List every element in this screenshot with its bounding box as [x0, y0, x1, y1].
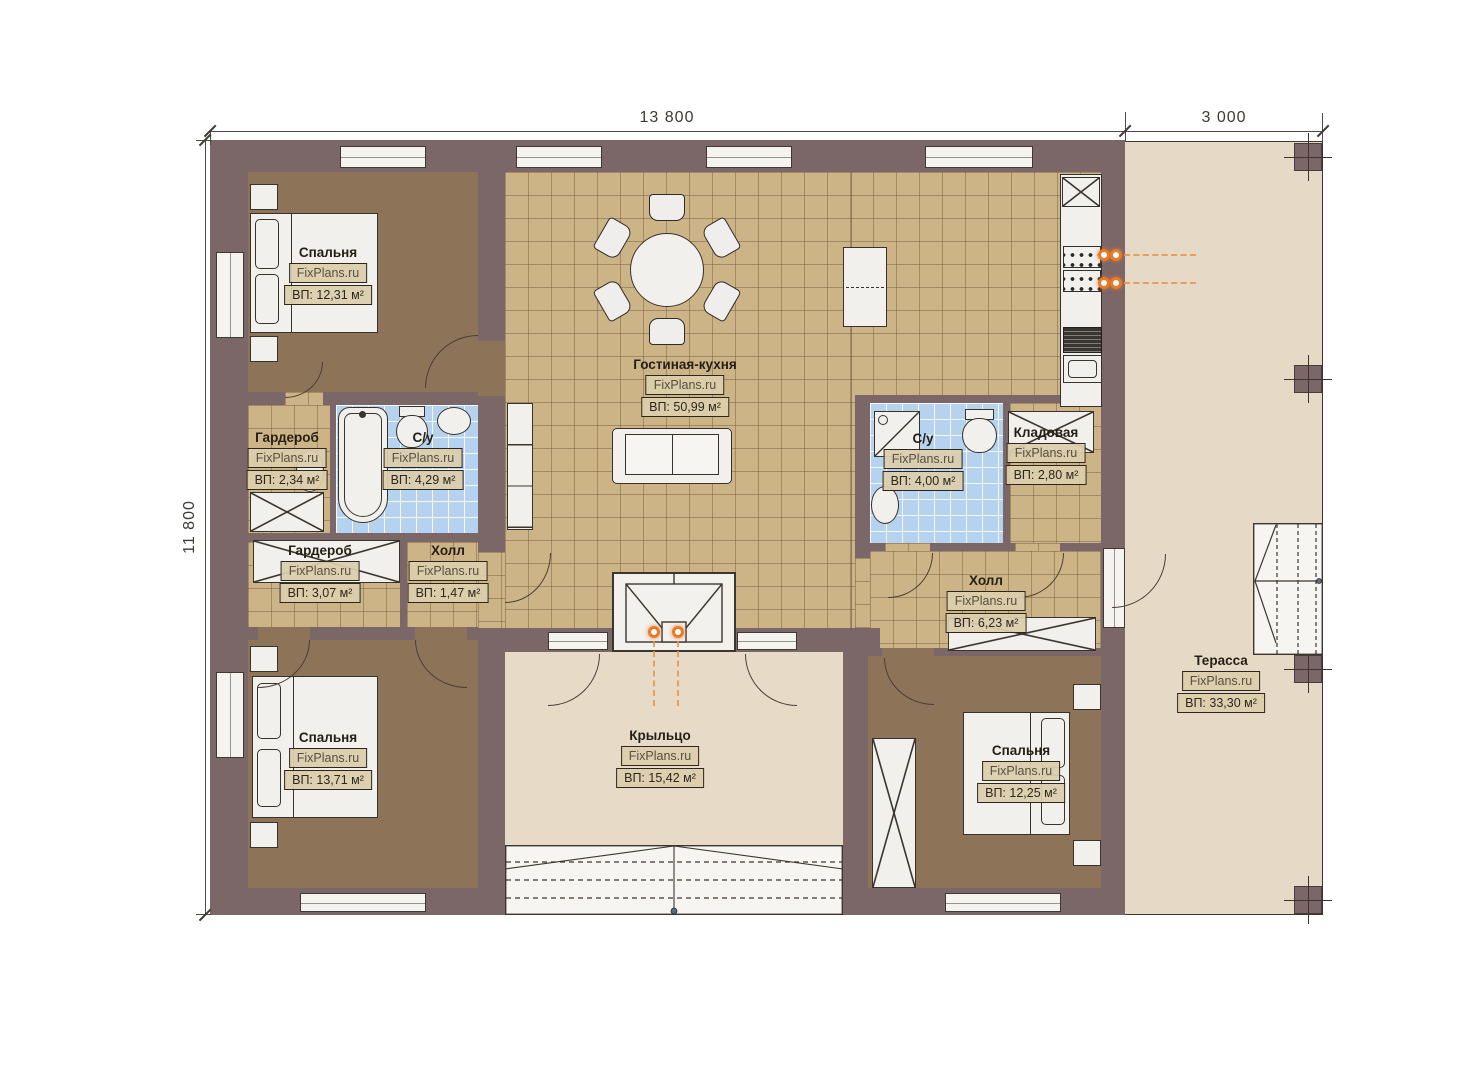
pillow: [255, 219, 279, 269]
watermark-box: FixPlans.ru: [621, 746, 700, 766]
utility-connector-icon: [1098, 249, 1110, 261]
kitchen-sink: [1063, 355, 1102, 383]
wall-wardrobe-bath-divider: [330, 405, 336, 533]
watermark-box: FixPlans.ru: [248, 448, 327, 468]
room-label-porch: Крыльцо FixPlans.ru ВП: 15,42 м²: [616, 729, 704, 788]
watermark-box: FixPlans.ru: [289, 748, 368, 768]
built-in-shelf: [507, 403, 533, 530]
utility-line: [1124, 282, 1196, 284]
door-opening: [258, 627, 310, 640]
room-label-storage: Кладовая FixPlans.ru ВП: 2,80 м²: [1006, 426, 1087, 485]
watermark-box: FixPlans.ru: [884, 449, 963, 469]
room-label-bedroom-tl: Спальня FixPlans.ru ВП: 12,31 м²: [284, 246, 372, 305]
area-box: ВП: 33,30 м²: [1177, 693, 1265, 713]
door-opening: [885, 543, 930, 551]
room-name: Спальня: [992, 744, 1050, 759]
nightstand: [250, 184, 278, 210]
room-name: С/у: [912, 432, 933, 447]
watermark-box: FixPlans.ru: [982, 761, 1061, 781]
room-label-bath-right: С/у FixPlans.ru ВП: 4,00 м²: [883, 432, 964, 491]
terrace-post: [1294, 143, 1322, 171]
area-box: ВП: 2,34 м²: [247, 470, 328, 490]
room-name: Терасса: [1194, 654, 1248, 669]
area-box: ВП: 15,42 м²: [616, 768, 704, 788]
utility-connector-icon: [1110, 277, 1122, 289]
wall-porch-right: [843, 645, 868, 888]
nightstand: [1073, 840, 1101, 866]
nightstand: [250, 336, 278, 362]
room-label-bedroom-br: Спальня FixPlans.ru ВП: 12,25 м²: [977, 744, 1065, 803]
wall-center-vertical: [478, 172, 505, 888]
room-name: С/у: [412, 431, 433, 446]
window: [516, 146, 602, 168]
pillow: [255, 274, 279, 324]
room-label-bath-left: С/у FixPlans.ru ВП: 4,29 м²: [383, 431, 464, 490]
watermark-box: FixPlans.ru: [947, 591, 1026, 611]
watermark-box: FixPlans.ru: [646, 375, 725, 395]
room-label-terrace: Терасса FixPlans.ru ВП: 33,30 м²: [1177, 654, 1265, 713]
vent-unit: [1062, 177, 1100, 207]
area-box: ВП: 12,25 м²: [977, 783, 1065, 803]
area-box: ВП: 3,07 м²: [280, 583, 361, 603]
room-label-wardrobe-left: Гардероб FixPlans.ru ВП: 3,07 м²: [280, 544, 361, 603]
toilet: [962, 409, 997, 453]
room-label-hall-small: Холл FixPlans.ru ВП: 1,47 м²: [408, 544, 489, 603]
window: [706, 146, 792, 168]
area-box: ВП: 12,31 м²: [284, 285, 372, 305]
room-name: Крыльцо: [629, 729, 690, 744]
sofa: [612, 428, 732, 484]
pillow: [257, 683, 281, 739]
stove-burners: [1063, 270, 1101, 292]
dimension-width-main: 13 800: [640, 109, 695, 127]
room-name: Гардероб: [288, 544, 352, 559]
wall-wardrobe-hall-divider: [400, 540, 407, 627]
bathtub: [338, 407, 388, 523]
fireplace: [612, 572, 736, 652]
watermark-box: FixPlans.ru: [281, 561, 360, 581]
room-label-hall-right: Холл FixPlans.ru ВП: 6,23 м²: [946, 574, 1027, 633]
room-label-living-kitchen: Гостиная-кухня FixPlans.ru ВП: 50,99 м²: [633, 358, 736, 417]
terrace-post: [1294, 365, 1322, 393]
window: [216, 672, 244, 758]
dimension-width-terrace: 3 000: [1201, 109, 1246, 127]
watermark-box: FixPlans.ru: [384, 448, 463, 468]
utility-connector-icon: [672, 626, 684, 638]
dimension-line-top: [210, 131, 1323, 132]
area-box: ВП: 4,00 м²: [883, 471, 964, 491]
area-box: ВП: 50,99 м²: [641, 397, 729, 417]
room-name: Гардероб: [255, 431, 319, 446]
area-box: ВП: 2,80 м²: [1006, 465, 1087, 485]
door-opening: [478, 341, 505, 396]
area-box: ВП: 6,23 м²: [946, 613, 1027, 633]
porch-window: [548, 632, 608, 650]
ceiling-beam-line: [851, 172, 852, 630]
window: [925, 146, 1033, 168]
watermark-box: FixPlans.ru: [1007, 443, 1086, 463]
washbasin: [871, 486, 899, 524]
utility-connector-icon: [1110, 249, 1122, 261]
watermark-box: FixPlans.ru: [1182, 671, 1261, 691]
room-name: Холл: [969, 574, 1003, 589]
porch-window: [737, 632, 797, 650]
dimension-height-left: 11 800: [181, 500, 199, 554]
door-opening: [855, 558, 870, 628]
utility-line: [1124, 254, 1196, 256]
window: [340, 146, 426, 168]
window: [216, 252, 244, 338]
utility-connector-icon: [1098, 277, 1110, 289]
dimension-extension: [1322, 113, 1323, 141]
utility-connector-icon: [648, 626, 660, 638]
terrace-stairs: [1253, 523, 1323, 655]
room-name: Спальня: [299, 246, 357, 261]
nightstand: [1073, 684, 1101, 710]
room-label-wardrobe-tl: Гардероб FixPlans.ru ВП: 2,34 м²: [247, 431, 328, 490]
pillow: [257, 749, 281, 807]
room-label-bedroom-bl: Спальня FixPlans.ru ВП: 13,71 м²: [284, 731, 372, 790]
utility-line: [677, 641, 679, 706]
watermark-box: FixPlans.ru: [289, 263, 368, 283]
door-opening: [882, 648, 934, 656]
watermark-box: FixPlans.ru: [409, 561, 488, 581]
dining-table: [630, 233, 704, 307]
terrace-post: [1294, 655, 1322, 683]
room-name: Гостиная-кухня: [633, 358, 736, 373]
room-name: Холл: [431, 544, 465, 559]
dimension-line-left: [205, 140, 206, 915]
door-opening: [415, 627, 467, 640]
nightstand: [250, 822, 278, 848]
wardrobe-cabinet: [250, 492, 324, 532]
sofa-cushions: [625, 434, 719, 475]
stove-burners: [1063, 246, 1101, 268]
terrace-post: [1294, 886, 1322, 914]
chair: [649, 318, 685, 345]
area-box: ВП: 13,71 м²: [284, 770, 372, 790]
room-name: Спальня: [299, 731, 357, 746]
chair: [649, 194, 685, 221]
oven: [1063, 327, 1102, 353]
room-name: Кладовая: [1014, 426, 1079, 441]
window: [945, 893, 1061, 912]
floor-plan: 13 800 3 000 11 800: [0, 0, 1473, 1080]
porch-steps: [505, 845, 843, 915]
area-box: ВП: 1,47 м²: [408, 583, 489, 603]
kitchen-island: [843, 247, 887, 327]
wardrobe-cabinet: [872, 738, 916, 888]
area-box: ВП: 4,29 м²: [383, 470, 464, 490]
door-opening: [1015, 543, 1060, 551]
utility-line: [653, 641, 655, 706]
toilet-bowl: [962, 418, 997, 453]
window: [300, 893, 426, 912]
